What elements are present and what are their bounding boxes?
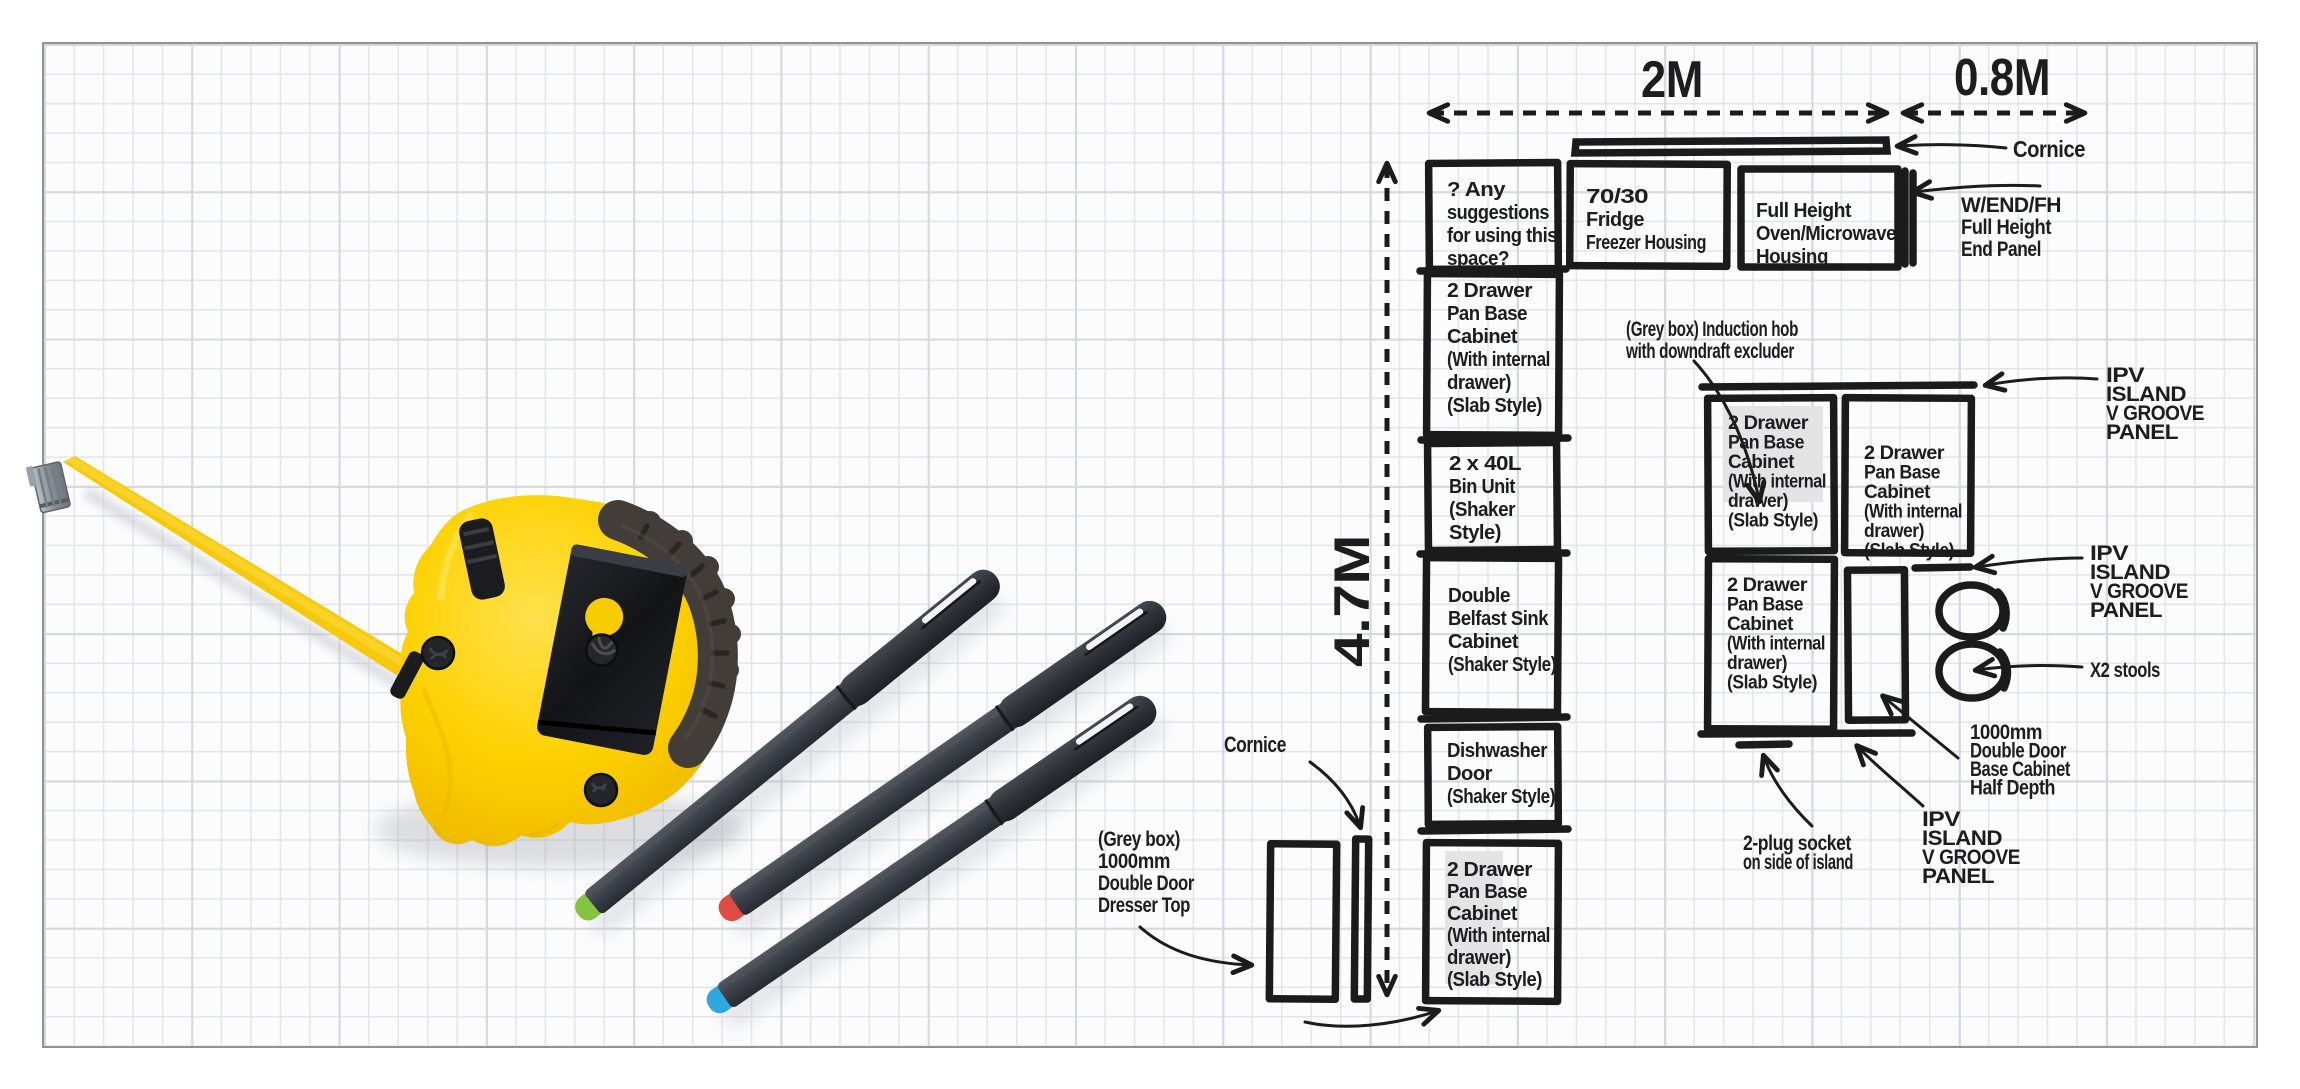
svg-text:(Grey box) Induction hobwith d: (Grey box) Induction hobwith downdraft e… — [1625, 318, 1798, 363]
svg-text:Cornice: Cornice — [1224, 732, 1286, 757]
svg-text:Full HeightOven/MicrowaveHousi: Full HeightOven/MicrowaveHousing — [1756, 200, 1896, 268]
svg-text:4.7M: 4.7M — [1324, 535, 1380, 667]
svg-text:IPVISLANDV GROOVEPANEL: IPVISLANDV GROOVEPANEL — [2106, 364, 2204, 444]
svg-text:2 x 40LBin Unit(ShakerStyle): 2 x 40LBin Unit(ShakerStyle) — [1449, 453, 1521, 544]
svg-text:IPVISLANDV GROOVEPANEL: IPVISLANDV GROOVEPANEL — [1922, 808, 2020, 888]
svg-text:DoubleBelfast SinkCabinet(Shak: DoubleBelfast SinkCabinet(Shaker Style) — [1448, 585, 1556, 676]
svg-text:(Grey box)1000mmDouble DoorDre: (Grey box)1000mmDouble DoorDresser Top — [1098, 828, 1194, 917]
svg-text:2-plug socketon side of island: 2-plug socketon side of island — [1743, 832, 1853, 874]
svg-text:0.8M: 0.8M — [1954, 49, 2050, 107]
svg-text:2 DrawerPan BaseCabinet(With i: 2 DrawerPan BaseCabinet(With internaldra… — [1447, 859, 1550, 991]
svg-text:Cornice: Cornice — [2013, 136, 2085, 162]
svg-text:IPVISLANDV GROOVEPANEL: IPVISLANDV GROOVEPANEL — [2090, 542, 2188, 622]
svg-text:DishwasherDoor(Shaker Style): DishwasherDoor(Shaker Style) — [1447, 740, 1555, 808]
svg-text:1000mmDouble DoorBase CabinetH: 1000mmDouble DoorBase CabinetHalf Depth — [1970, 721, 2070, 800]
svg-text:X2 stools: X2 stools — [2090, 659, 2160, 682]
svg-text:2M: 2M — [1641, 51, 1703, 109]
svg-text:W/END/FHFull HeightEnd Panel: W/END/FHFull HeightEnd Panel — [1961, 194, 2061, 261]
svg-text:2 DrawerPan BaseCabinet(With i: 2 DrawerPan BaseCabinet(With internaldra… — [1864, 443, 1962, 562]
svg-text:2 DrawerPan BaseCabinet(With i: 2 DrawerPan BaseCabinet(With internaldra… — [1447, 280, 1550, 417]
svg-text:70/30FridgeFreezer Housing: 70/30FridgeFreezer Housing — [1586, 186, 1706, 254]
svg-text:2 DrawerPan BaseCabinet(With i: 2 DrawerPan BaseCabinet(With internaldra… — [1727, 575, 1825, 694]
svg-text:? Anysuggestionsfor using this: ? Anysuggestionsfor using thisspace? — [1447, 179, 1557, 270]
